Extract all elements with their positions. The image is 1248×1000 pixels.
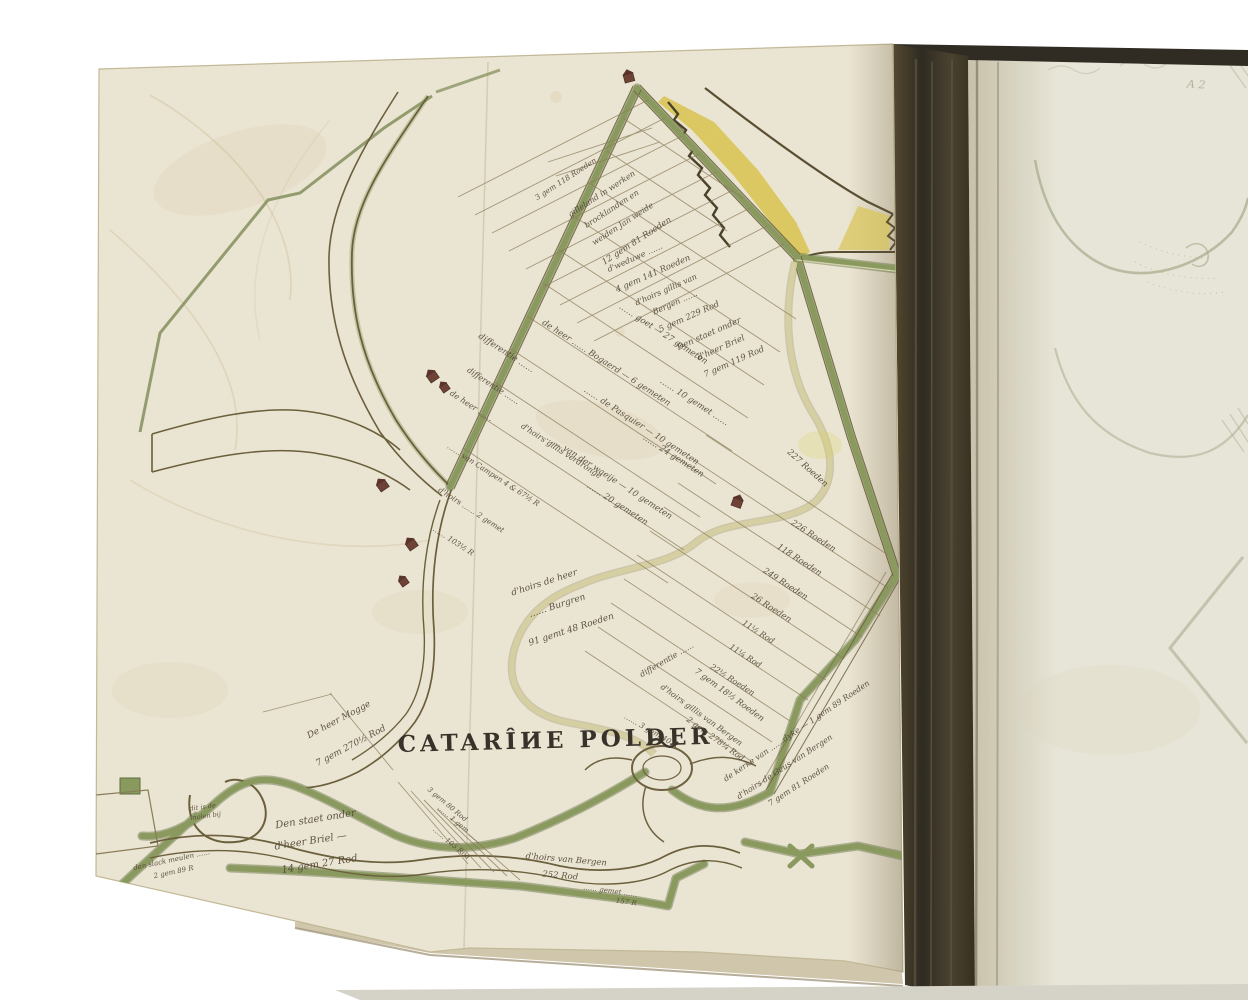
mill-icon bbox=[66, 836, 84, 854]
page-stack-edge bbox=[1009, 62, 1010, 1000]
photo-background: A 2 bbox=[0, 0, 1248, 1000]
cover-bottom-edge bbox=[335, 984, 1248, 1000]
page-stack-edge bbox=[986, 60, 987, 1000]
folio-mark: A 2 bbox=[1186, 77, 1206, 91]
manuscript-atlas-photo: A 2 bbox=[0, 0, 1248, 1000]
book-gutter bbox=[893, 44, 975, 1000]
left-page: CATARÎИE POLDER 3 gem 118 Roeden gillela… bbox=[66, 40, 906, 980]
page-stain bbox=[1020, 665, 1200, 755]
right-page: A 2 bbox=[968, 52, 1248, 1000]
page-stack-edge bbox=[976, 60, 977, 1000]
page-stack-edge bbox=[997, 62, 998, 1000]
